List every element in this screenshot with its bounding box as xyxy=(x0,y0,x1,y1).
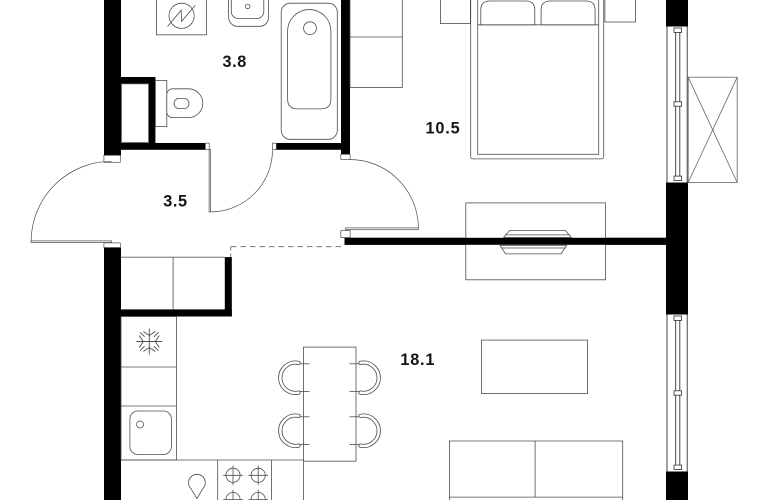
svg-text:3.8: 3.8 xyxy=(222,53,246,71)
svg-text:18.1: 18.1 xyxy=(400,351,435,369)
svg-text:3.5: 3.5 xyxy=(163,192,187,210)
svg-text:10.5: 10.5 xyxy=(426,119,461,137)
